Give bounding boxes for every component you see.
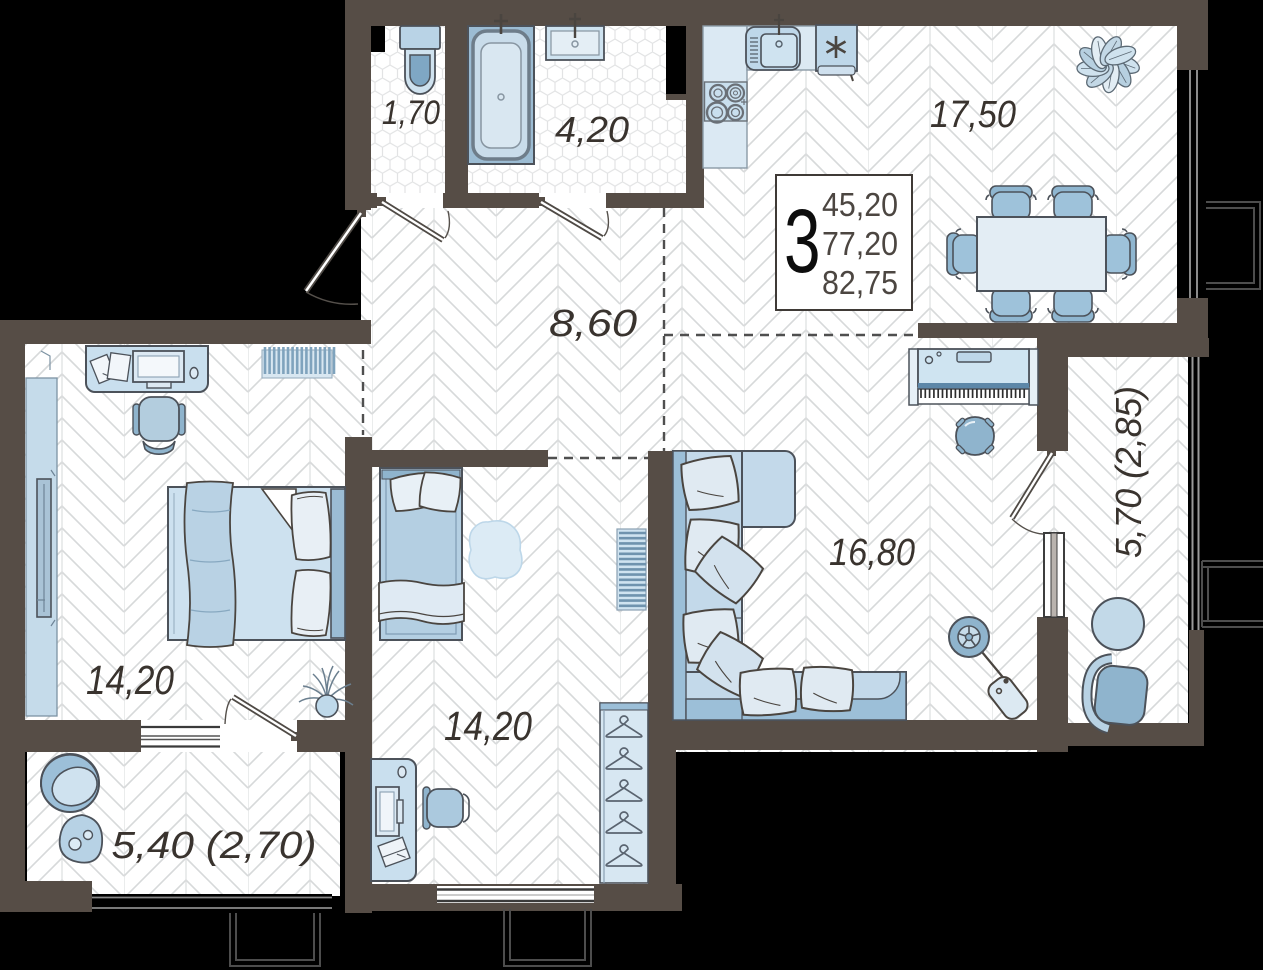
svg-text:4,20: 4,20 [555,109,629,150]
svg-text:5,40 (2,70): 5,40 (2,70) [112,825,317,867]
svg-text:14,20: 14,20 [86,657,174,703]
svg-text:3: 3 [784,191,821,292]
svg-text:8,60: 8,60 [549,303,637,345]
svg-text:82,75: 82,75 [822,264,898,301]
svg-text:77,20: 77,20 [822,225,898,262]
svg-text:16,80: 16,80 [829,532,915,574]
svg-text:1,70: 1,70 [382,94,440,132]
svg-text:17,50: 17,50 [930,94,1016,136]
svg-text:45,20: 45,20 [822,186,898,223]
svg-text:14,20: 14,20 [444,703,532,749]
svg-text:5,70 (2,85): 5,70 (2,85) [1108,386,1149,558]
